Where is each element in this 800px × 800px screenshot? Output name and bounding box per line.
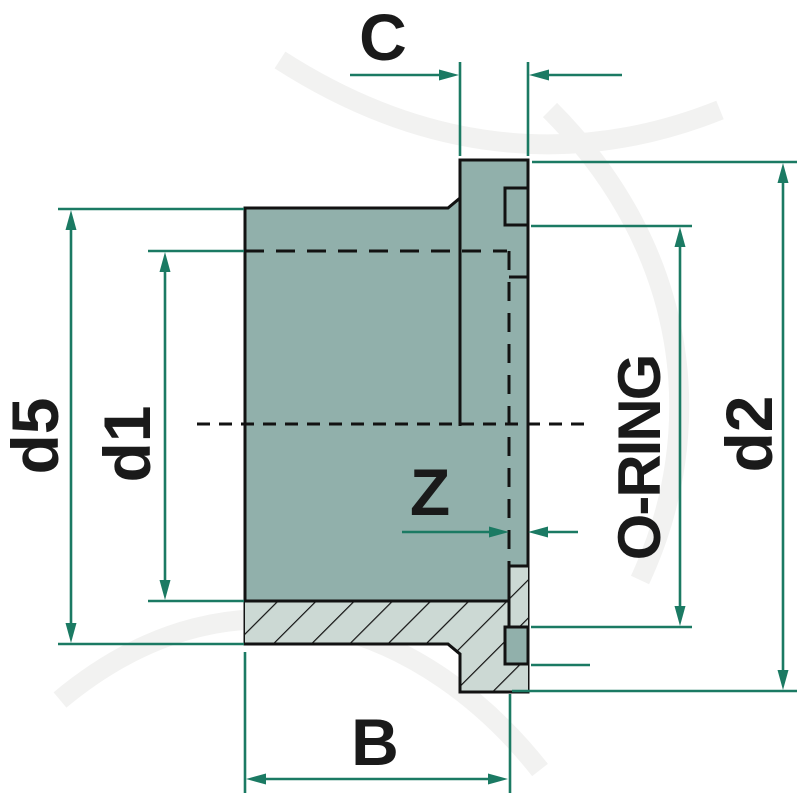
dim-d5-arrow-top <box>66 210 77 230</box>
dim-c-label: C <box>359 0 407 74</box>
dim-oring-label: O-RING <box>606 356 673 561</box>
dim-b-arrow-left <box>246 774 266 785</box>
dim-c-arrow-right <box>529 70 549 81</box>
dim-d2-arrow-bottom <box>778 670 789 690</box>
dim-d1-arrow-bottom <box>160 580 171 600</box>
dim-d5-arrow-bottom <box>66 623 77 643</box>
dim-z-arrow-right <box>528 527 548 538</box>
dim-d1-label: d1 <box>90 405 164 482</box>
dim-b-arrow-right <box>488 774 508 785</box>
dim-c-arrow-left <box>439 70 459 81</box>
dim-d5-label: d5 <box>0 397 72 474</box>
dim-d2-arrow-top <box>778 163 789 183</box>
oring-groove-top <box>505 188 528 225</box>
dim-d1-arrow-top <box>160 252 171 272</box>
dim-d2-label: d2 <box>712 395 786 472</box>
dim-oring-arrow-bottom <box>675 606 686 626</box>
dim-oring-arrow-top <box>675 227 686 247</box>
flange-adapter-section-drawing: C d5 d1 Z O-RING <box>0 0 800 800</box>
technical-drawing-canvas: C d5 d1 Z O-RING <box>0 0 800 800</box>
dim-b-label: B <box>351 705 399 779</box>
oring-groove-bottom <box>505 627 528 664</box>
dim-z-label: Z <box>410 455 450 529</box>
dimension-d1: d1 <box>90 251 244 601</box>
